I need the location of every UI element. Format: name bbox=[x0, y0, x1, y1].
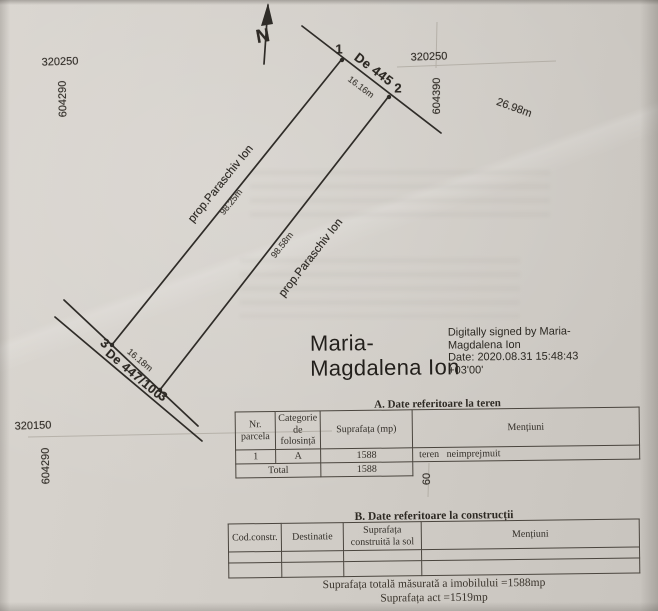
signature-name-line2: Magdalena Ion bbox=[310, 354, 460, 381]
grid-northing-top-right: 320250 bbox=[410, 50, 447, 63]
cell-suprafata: 1588 bbox=[321, 448, 413, 463]
cell-total-value: 1588 bbox=[321, 462, 413, 477]
table-b-col-mentiuni: Mențiuni bbox=[421, 519, 639, 550]
summary-act-area: Suprafața act =1519mp bbox=[228, 590, 640, 606]
table-teren: Nr. parcela Categorie de folosință Supra… bbox=[235, 407, 641, 479]
grid-northing-top-left: 320250 bbox=[41, 55, 78, 68]
cell-empty bbox=[229, 562, 282, 578]
cell-empty bbox=[422, 558, 640, 576]
grid-easting-bottom-right-partial: 60 bbox=[421, 473, 433, 485]
grid-easting-bottom-left: 604290 bbox=[40, 448, 53, 485]
cell-empty bbox=[344, 561, 422, 577]
cell-nr-parcela: 1 bbox=[236, 449, 276, 463]
north-arrow-icon bbox=[261, 3, 273, 26]
table-a-col-categorie: Categorie de folosință bbox=[275, 411, 320, 450]
cell-empty bbox=[413, 459, 640, 476]
signature-name-line1: Maria- bbox=[310, 329, 460, 356]
table-b-col-destinatie: Destinatie bbox=[281, 523, 343, 552]
cell-total-label: Total bbox=[236, 463, 321, 478]
cell-empty bbox=[229, 551, 282, 563]
signature-detail-line4: +03'00' bbox=[448, 363, 578, 377]
grid-northing-bottom-left: 320150 bbox=[14, 419, 51, 432]
table-a-col-nr: Nr. parcela bbox=[235, 411, 275, 449]
point-2-marker bbox=[387, 95, 391, 99]
scanned-cadastral-document: N 1 2 3 3 De 445 De 447/100 16.16m 16.18… bbox=[0, 0, 658, 611]
signature-details: Digitally signed by Maria- Magdalena Ion… bbox=[448, 325, 579, 376]
table-a-col-suprafata: Suprafața (mp) bbox=[320, 410, 412, 449]
signature-detail-line1: Digitally signed by Maria- bbox=[448, 325, 578, 339]
grid-easting-top-left: 604290 bbox=[57, 81, 70, 118]
signature-name: Maria- Magdalena Ion bbox=[310, 329, 460, 381]
table-b-col-suprafata: Suprafața construită la sol bbox=[343, 522, 421, 551]
grid-easting-top-right: 604390 bbox=[431, 78, 443, 115]
cell-empty bbox=[282, 562, 344, 578]
table-b-col-cod: Cod.constr. bbox=[228, 523, 281, 552]
point-2-label: 2 bbox=[394, 81, 401, 96]
cell-empty bbox=[282, 551, 344, 563]
road-de445-line bbox=[302, 26, 441, 133]
table-constructii: Cod.constr. Destinatie Suprafața constru… bbox=[228, 518, 641, 578]
cell-categorie: A bbox=[276, 449, 321, 464]
signature-detail-line3: Date: 2020.08.31 15:48:43 bbox=[448, 350, 578, 364]
point-1-marker bbox=[340, 58, 344, 62]
point-1-label: 1 bbox=[335, 42, 342, 57]
table-a-col-mentiuni: Mențiuni bbox=[412, 407, 639, 448]
